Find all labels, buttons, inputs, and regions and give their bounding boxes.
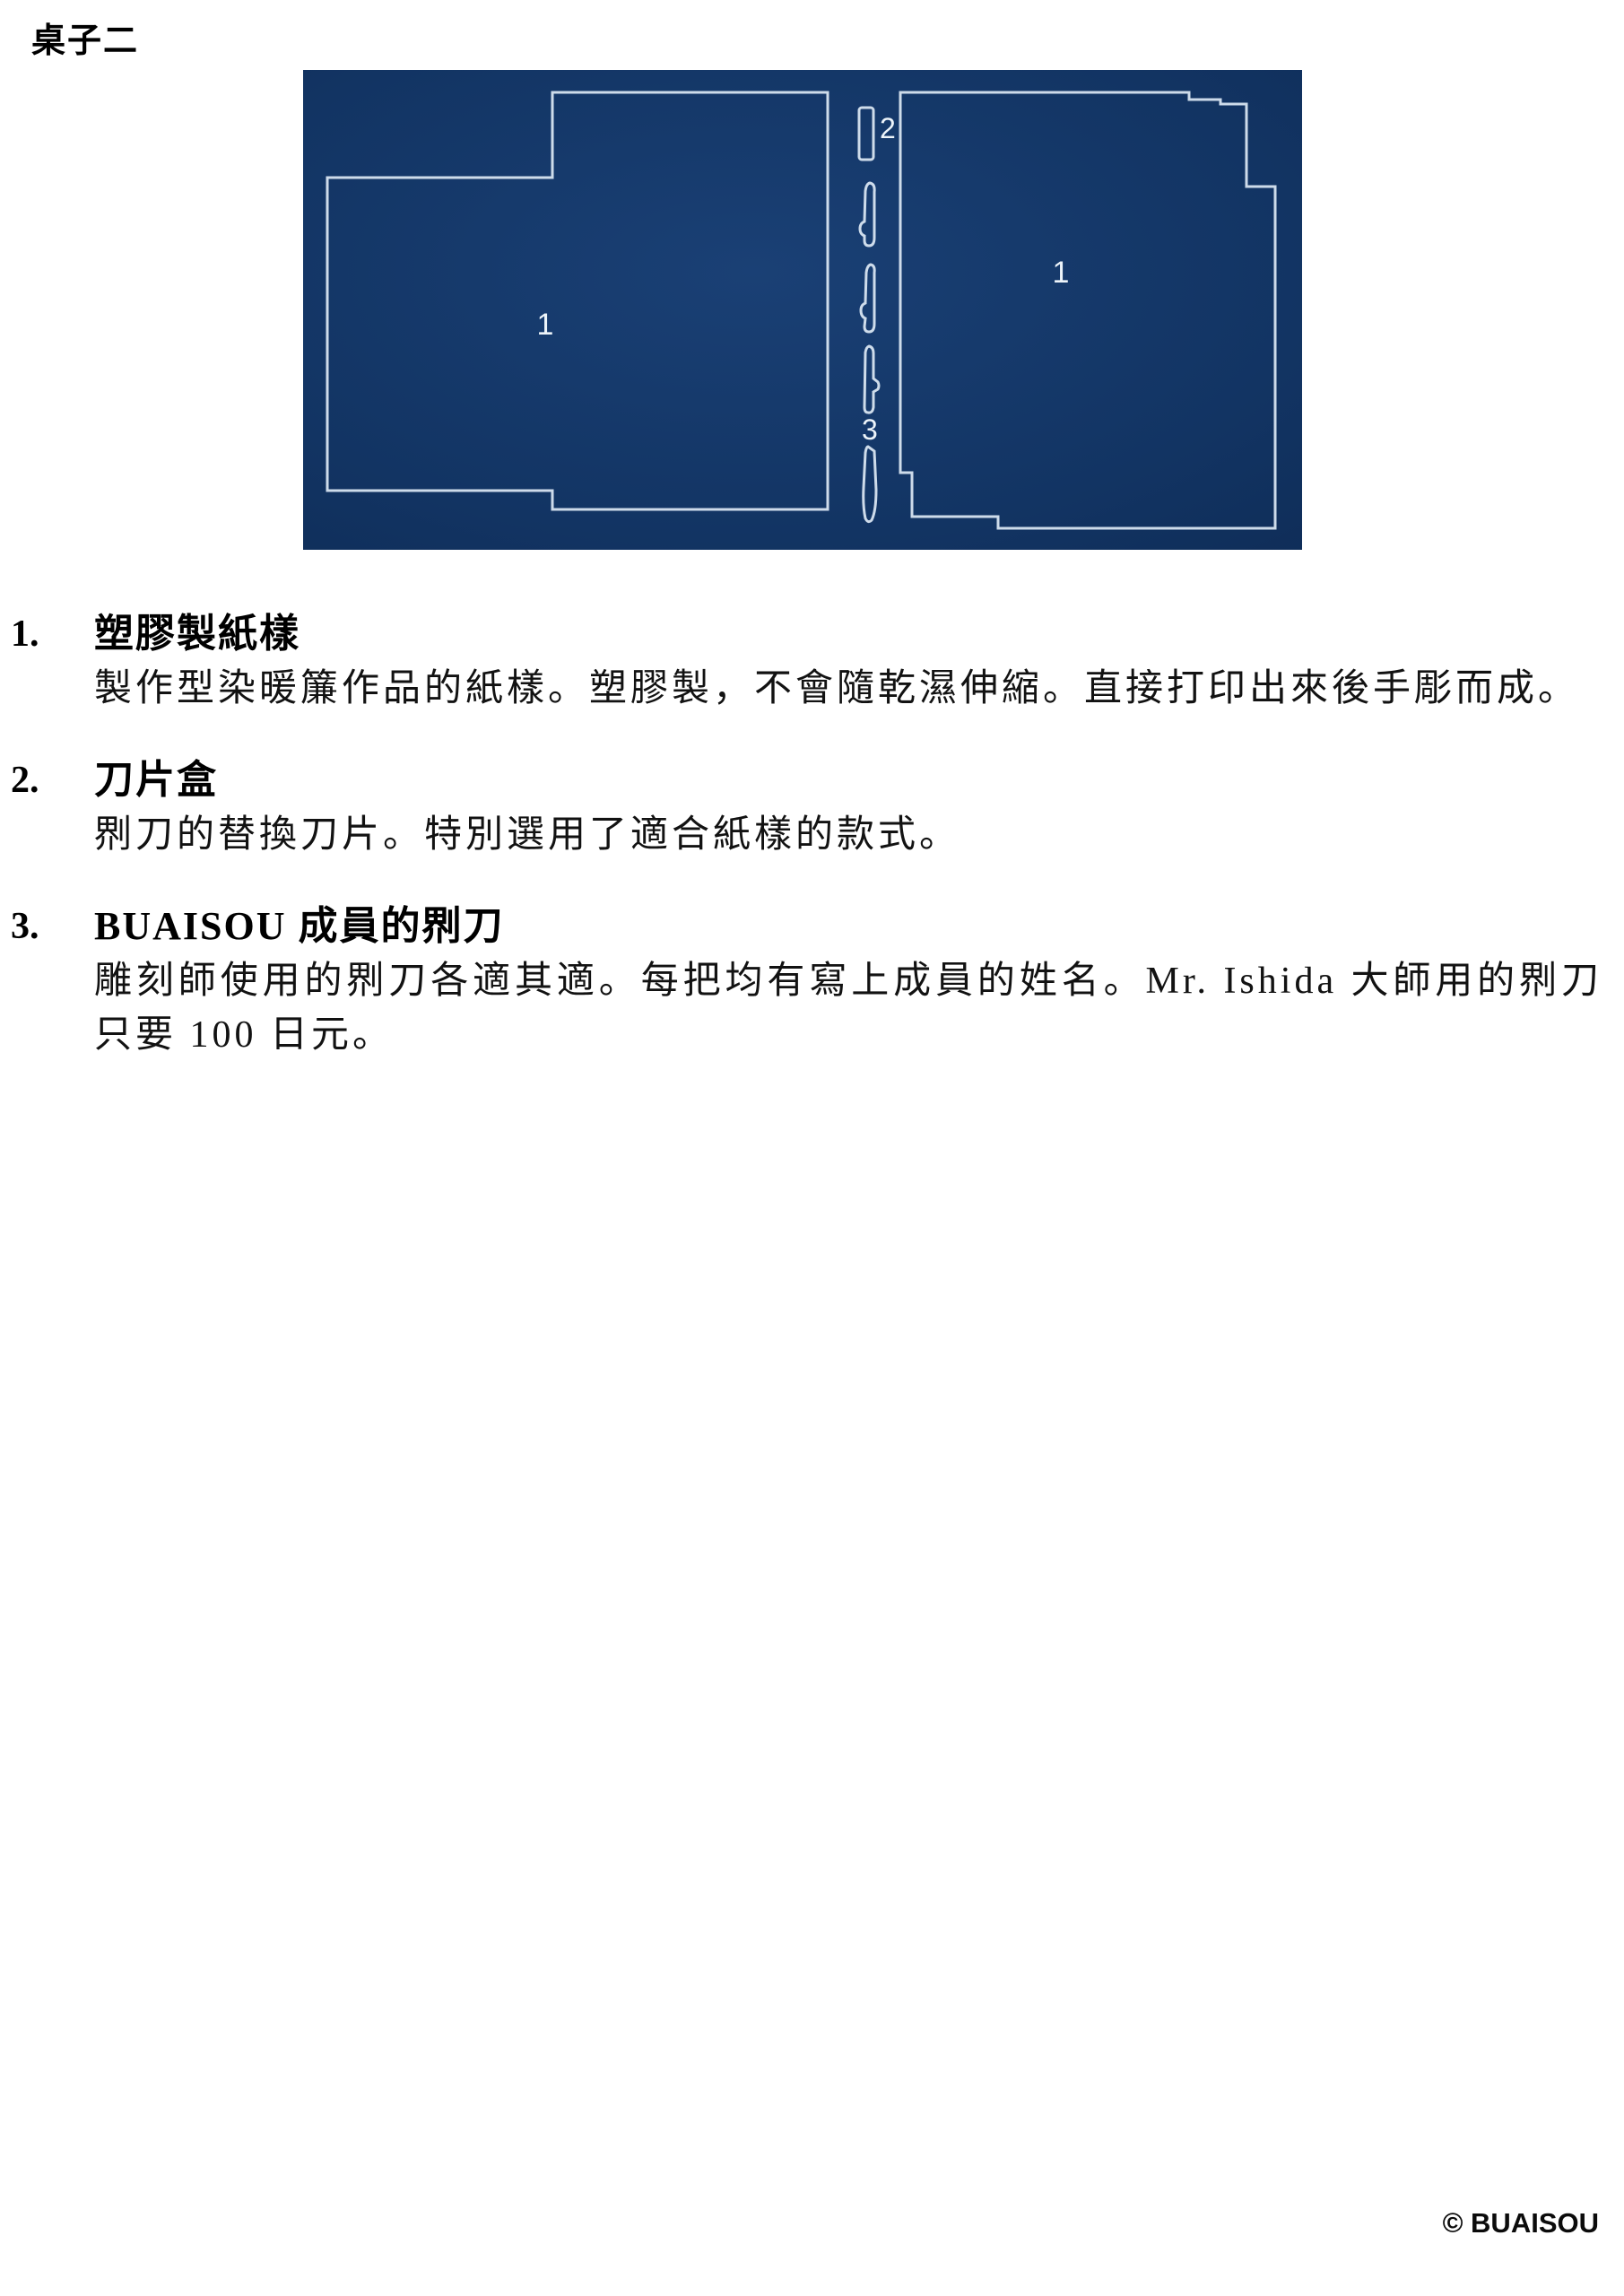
legend-item-member-blades: 3. BUAISOU 成員的𠝹刀 雕刻師使用的𠝹刀各適其適。每把均有寫上成員的姓… xyxy=(0,899,1624,1062)
photo-label-member-blades: 3 xyxy=(862,413,878,446)
legend-item-stencil: 1. 塑膠製紙樣 製作型染暖簾作品的紙樣。塑膠製，不會隨乾濕伸縮。直接打印出來後… xyxy=(0,606,1624,716)
legend-heading: BUAISOU 成員的𠝹刀 xyxy=(94,899,1602,954)
legend-item-blade-case: 2. 刀片盒 𠝹刀的替換刀片。特別選用了適合紙樣的款式。 xyxy=(0,752,1624,862)
copyright-notice: © BUAISOU xyxy=(1443,2207,1599,2239)
stencil-photo: 1 2 3 1 xyxy=(303,70,1302,550)
legend-number: 1. xyxy=(11,606,39,662)
legend-heading: 刀片盒 xyxy=(94,752,1602,808)
legend-number: 2. xyxy=(11,752,39,808)
photo-background xyxy=(303,70,1302,550)
legend-texts: 塑膠製紙樣 製作型染暖簾作品的紙樣。塑膠製，不會隨乾濕伸縮。直接打印出來後手彫而… xyxy=(94,606,1602,716)
legend-texts: BUAISOU 成員的𠝹刀 雕刻師使用的𠝹刀各適其適。每把均有寫上成員的姓名。M… xyxy=(94,899,1602,1062)
legend-body: 𠝹刀的替換刀片。特別選用了適合紙樣的款式。 xyxy=(94,808,1602,862)
legend-number: 3. xyxy=(11,899,39,954)
legend-body: 雕刻師使用的𠝹刀各適其適。每把均有寫上成員的姓名。Mr. Ishida 大師用的… xyxy=(94,954,1602,1062)
photo-label-blade-case: 2 xyxy=(880,112,896,144)
legend-heading: 塑膠製紙樣 xyxy=(94,606,1602,662)
legend-texts: 刀片盒 𠝹刀的替換刀片。特別選用了適合紙樣的款式。 xyxy=(94,752,1602,862)
stencil-photo-canvas: 1 2 3 1 xyxy=(303,70,1302,550)
photo-label-left-stencil: 1 xyxy=(537,308,554,342)
legend-body: 製作型染暖簾作品的紙樣。塑膠製，不會隨乾濕伸縮。直接打印出來後手彫而成。 xyxy=(94,662,1602,716)
photo-label-right-stencil: 1 xyxy=(1053,256,1070,290)
page-title: 桌子二 xyxy=(31,13,139,62)
